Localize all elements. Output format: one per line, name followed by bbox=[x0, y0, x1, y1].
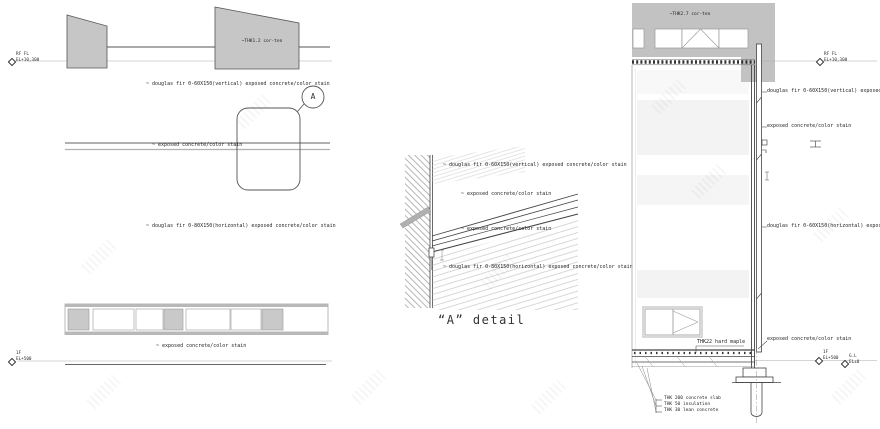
left-f1-level-line bbox=[18, 361, 332, 365]
rf-level-elev: EL+10,300 bbox=[16, 58, 39, 64]
right-exposed-upper-label: exposed concrete/color stain bbox=[767, 124, 851, 130]
right-soffit-ticks bbox=[632, 60, 755, 65]
right-slab-note-leaders bbox=[637, 363, 662, 413]
rf-level-text-left: RF FL EL+10,300 bbox=[16, 52, 39, 63]
right-douglas-vertical-label: douglas fir 0-60X150(vertical) exposed c… bbox=[767, 89, 880, 95]
gl-level-elev: EL±0 bbox=[849, 360, 859, 366]
f1-level-elev: EL+500 bbox=[823, 356, 839, 362]
detail-douglas-vertical-label: ~ douglas fir 0-60X150(vertical) exposed… bbox=[443, 163, 627, 169]
drawing-canvas: RF FL EL+10,300 ~THK1.2 cor-ten ~ dougla… bbox=[0, 0, 880, 429]
left-douglas-horizontal-label: ~ douglas fir 0-80X150(horizontal) expos… bbox=[146, 224, 336, 230]
callout-a-letter: A bbox=[308, 92, 318, 101]
rf-level-text-right: RF FL EL+10,300 bbox=[824, 52, 847, 63]
gl-level-text: G.L EL±0 bbox=[849, 354, 859, 365]
left-corten-label: ~THK1.2 cor-ten bbox=[225, 40, 299, 45]
left-douglas-vertical-label: ~ douglas fir 0-60X150(vertical) exposed… bbox=[146, 82, 330, 88]
detail-caption: “A” detail bbox=[438, 313, 525, 327]
detail-exposed-upper-label: ~ exposed concrete/color stain bbox=[461, 192, 551, 198]
left-panel-linework bbox=[0, 0, 340, 380]
right-steel-symbol bbox=[810, 141, 821, 147]
slab-note-lean-concrete: THK 30 lean concrete bbox=[664, 409, 718, 414]
right-exposed-lower-label: exposed concrete/color stain bbox=[767, 337, 851, 343]
f1-level-elev: EL+500 bbox=[16, 357, 32, 363]
detail-exposed-lower-label: ~ exposed concrete/color stain bbox=[461, 227, 551, 233]
right-floor-finish-label: THK22 hard maple bbox=[697, 340, 745, 346]
right-floor-deck bbox=[632, 350, 755, 367]
left-exposed-lower-label: ~ exposed concrete/color stain bbox=[156, 344, 246, 350]
detail-wall-hatch bbox=[405, 155, 433, 308]
right-footing bbox=[732, 348, 781, 424]
rf-level-elev: EL+10,300 bbox=[824, 58, 847, 64]
left-exposed-upper-label: ~ exposed concrete/color stain bbox=[152, 143, 242, 149]
f1-level-text-left: 1F EL+500 bbox=[16, 351, 32, 362]
detail-douglas-horizontal-label: ~ douglas fir 0-80X150(horizontal) expos… bbox=[443, 265, 633, 271]
right-corten-label: ~THK2.7 cor-ten bbox=[654, 13, 726, 18]
watermark bbox=[531, 378, 567, 414]
left-window-band bbox=[65, 304, 328, 335]
right-window-elevation bbox=[643, 307, 702, 337]
left-corten-cap bbox=[67, 7, 330, 69]
f1-level-text-right: 1F EL+500 bbox=[823, 350, 839, 361]
detail-callout-bubble bbox=[237, 86, 324, 190]
watermark bbox=[351, 368, 387, 404]
detail-panel-linework bbox=[385, 148, 585, 333]
